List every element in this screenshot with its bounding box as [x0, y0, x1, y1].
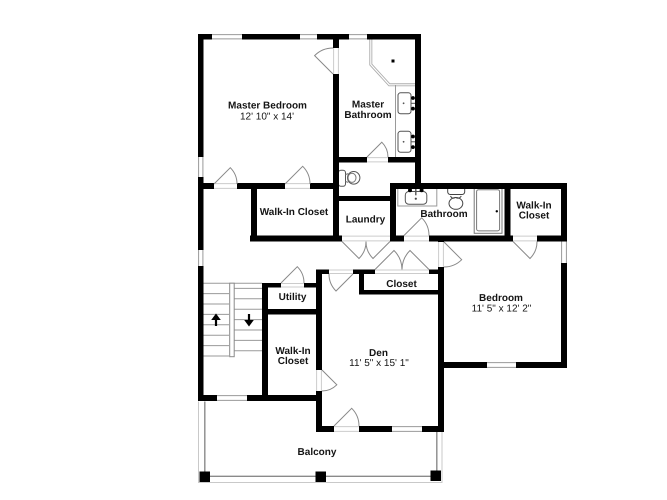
svg-text:Utility: Utility: [279, 292, 307, 303]
svg-text:Closet: Closet: [519, 211, 550, 222]
svg-text:Bathroom: Bathroom: [344, 110, 391, 121]
svg-text:Closet: Closet: [386, 279, 417, 290]
svg-text:Walk-In Closet: Walk-In Closet: [260, 207, 329, 218]
svg-text:Laundry: Laundry: [346, 215, 386, 226]
svg-text:Master Bedroom: Master Bedroom: [228, 101, 307, 112]
svg-text:Master: Master: [352, 100, 384, 111]
svg-text:Bedroom: Bedroom: [479, 293, 523, 304]
svg-text:11' 5" x 12' 2": 11' 5" x 12' 2": [472, 304, 532, 315]
svg-text:Closet: Closet: [278, 356, 309, 367]
svg-text:Balcony: Balcony: [298, 447, 337, 458]
svg-text:Bathroom: Bathroom: [420, 209, 467, 220]
svg-text:11' 5" x 15' 1": 11' 5" x 15' 1": [349, 358, 409, 369]
svg-text:12' 10" x 14': 12' 10" x 14': [240, 112, 294, 123]
